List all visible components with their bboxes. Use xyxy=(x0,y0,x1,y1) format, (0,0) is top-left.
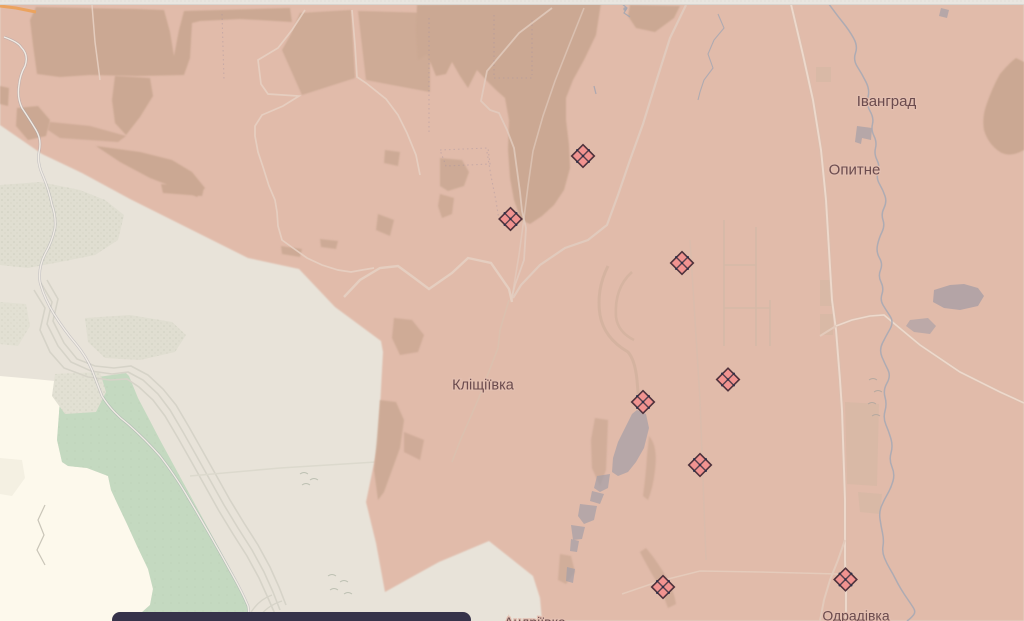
svg-text:Іванград: Іванград xyxy=(857,93,917,110)
svg-text:Кліщіївка: Кліщіївка xyxy=(452,378,515,394)
svg-text:Опитне: Опитне xyxy=(829,162,881,179)
svg-text:Андріївка: Андріївка xyxy=(504,614,566,621)
svg-text:Одрадівка: Одрадівка xyxy=(822,608,889,621)
